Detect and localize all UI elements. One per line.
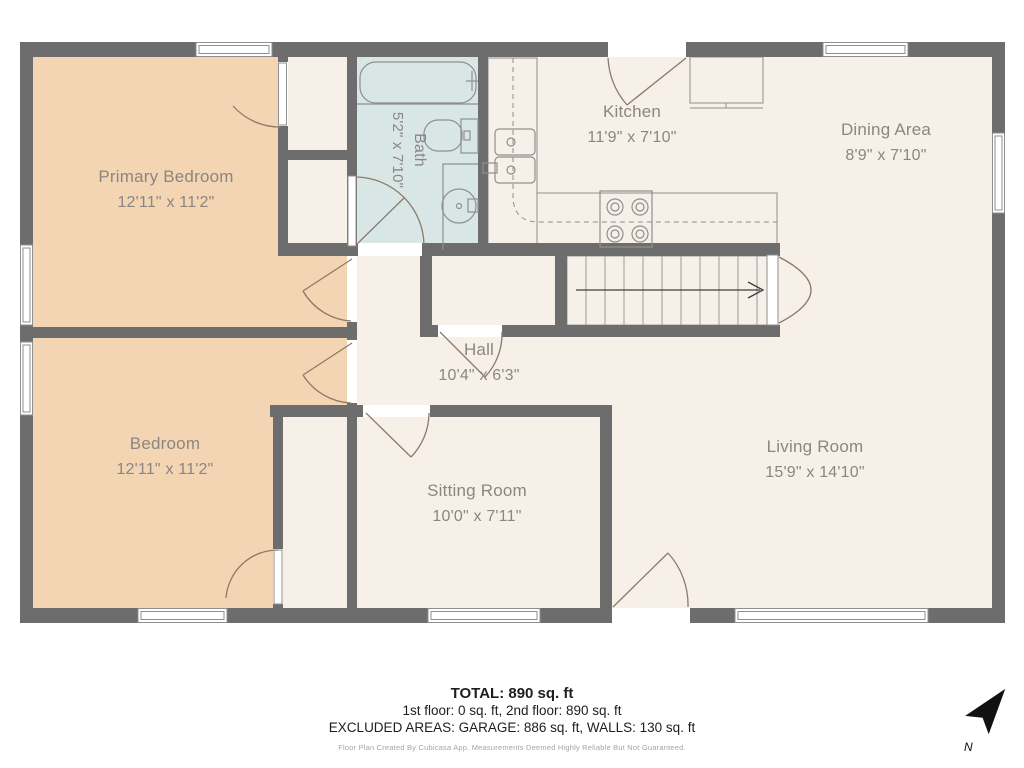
floor-areas-text: 1st floor: 0 sq. ft, 2nd floor: 890 sq. … [0, 702, 1024, 719]
window-dining-top [823, 43, 908, 57]
room-dimensions: 12'11" x 11'2" [116, 457, 213, 483]
window-primary-left [21, 245, 33, 325]
room-dimensions: 12'11" x 11'2" [98, 190, 233, 216]
bedroom-alcove-floor [273, 338, 347, 405]
wall-sitting-north [270, 405, 612, 417]
wall-stair-closet-right [555, 256, 567, 325]
primary-closet-door-leaf [279, 63, 287, 125]
window-living-bottom [735, 609, 928, 623]
window-sitting-bottom [428, 609, 540, 623]
wall-bath-kitchen [478, 57, 488, 247]
bath-door-leaf [348, 176, 356, 246]
room-dimensions: 10'4" x 6'3" [438, 363, 519, 389]
room-dimensions: 10'0" x 7'11" [427, 504, 527, 530]
front-entry-opening [612, 608, 690, 623]
room-label-dining-area: Dining Area 8'9" x 7'10" [841, 117, 931, 169]
room-dimensions: 11'9" x 7'10" [587, 125, 676, 151]
window-primary-top [196, 43, 272, 57]
room-label-hall: Hall 10'4" x 6'3" [438, 337, 519, 389]
bedroom-opening [347, 340, 357, 403]
compass-north-label: N [964, 740, 973, 754]
floor-plan-page: Primary Bedroom 12'11" x 11'2" Bedroom 1… [0, 0, 1024, 768]
room-label-bath: Bath 5'2" x 7'10" [386, 112, 430, 188]
window-bedroom-left [21, 342, 33, 415]
hall-closet-opening [438, 325, 502, 337]
wall-stair-closet-left [420, 256, 432, 325]
room-label-bedroom: Bedroom 12'11" x 11'2" [116, 431, 213, 483]
wall-closet-sitting [347, 417, 357, 608]
kitchen-entry-opening [608, 42, 686, 57]
window-dining-right [993, 133, 1005, 213]
stair-door-leaf [767, 255, 778, 325]
primary-bedroom-alcove-floor [278, 256, 347, 327]
excluded-areas-text: EXCLUDED AREAS: GARAGE: 886 sq. ft, WALL… [0, 719, 1024, 736]
wall-sitting-living [600, 405, 612, 608]
north-compass-icon: N [946, 680, 1024, 760]
room-name: Kitchen [587, 99, 676, 125]
room-name: Bedroom [116, 431, 213, 457]
room-label-sitting-room: Sitting Room 10'0" x 7'11" [427, 478, 527, 530]
room-name: Primary Bedroom [98, 164, 233, 190]
room-name: Living Room [765, 434, 864, 460]
compass-arrow [965, 680, 1017, 734]
primary-bedroom-opening [347, 256, 357, 322]
room-label-primary-bedroom: Primary Bedroom 12'11" x 11'2" [98, 164, 233, 216]
area-summary: TOTAL: 890 sq. ft 1st floor: 0 sq. ft, 2… [0, 685, 1024, 752]
room-name: Bath [408, 112, 430, 188]
room-label-living-room: Living Room 15'9" x 14'10" [765, 434, 864, 486]
room-name: Dining Area [841, 117, 931, 143]
room-name: Sitting Room [427, 478, 527, 504]
total-area-text: TOTAL: 890 sq. ft [0, 685, 1024, 702]
room-label-kitchen: Kitchen 11'9" x 7'10" [587, 99, 676, 151]
sitting-room-opening [363, 405, 430, 417]
wall-between-bedrooms [20, 327, 357, 338]
bedroom-closet-door-leaf [274, 550, 282, 604]
window-bedroom-bottom [138, 609, 227, 623]
room-dimensions: 15'9" x 14'10" [765, 460, 864, 486]
wall-between-closets [278, 150, 357, 160]
room-dimensions: 5'2" x 7'10" [386, 112, 408, 188]
disclaimer-text: Floor Plan Created By Cubicasa App. Meas… [0, 743, 1024, 752]
bath-opening [358, 243, 422, 256]
room-dimensions: 8'9" x 7'10" [841, 143, 931, 169]
room-name: Hall [438, 337, 519, 363]
